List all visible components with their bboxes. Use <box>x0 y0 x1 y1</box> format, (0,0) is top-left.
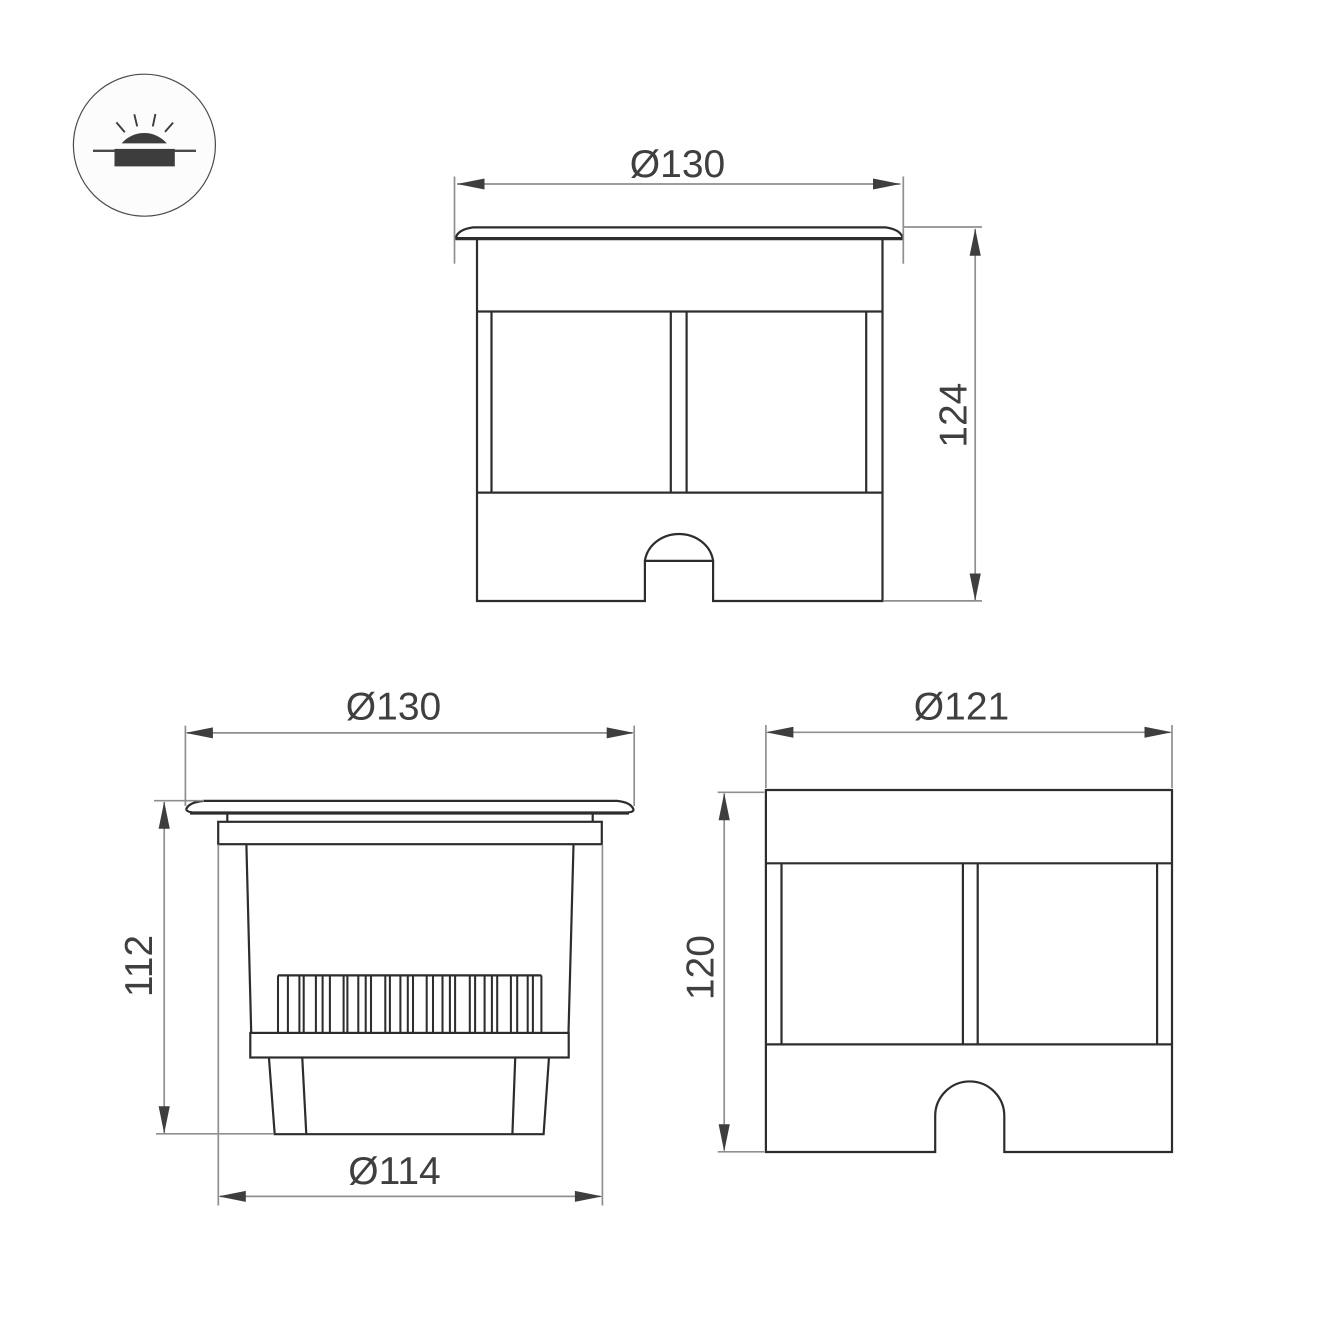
svg-text:Ø121: Ø121 <box>914 686 1009 729</box>
svg-text:112: 112 <box>118 935 161 997</box>
svg-text:Ø114: Ø114 <box>348 1150 441 1193</box>
svg-text:124: 124 <box>933 383 976 448</box>
svg-text:Ø130: Ø130 <box>630 143 725 186</box>
svg-text:120: 120 <box>680 935 723 1000</box>
svg-text:Ø130: Ø130 <box>346 686 441 729</box>
